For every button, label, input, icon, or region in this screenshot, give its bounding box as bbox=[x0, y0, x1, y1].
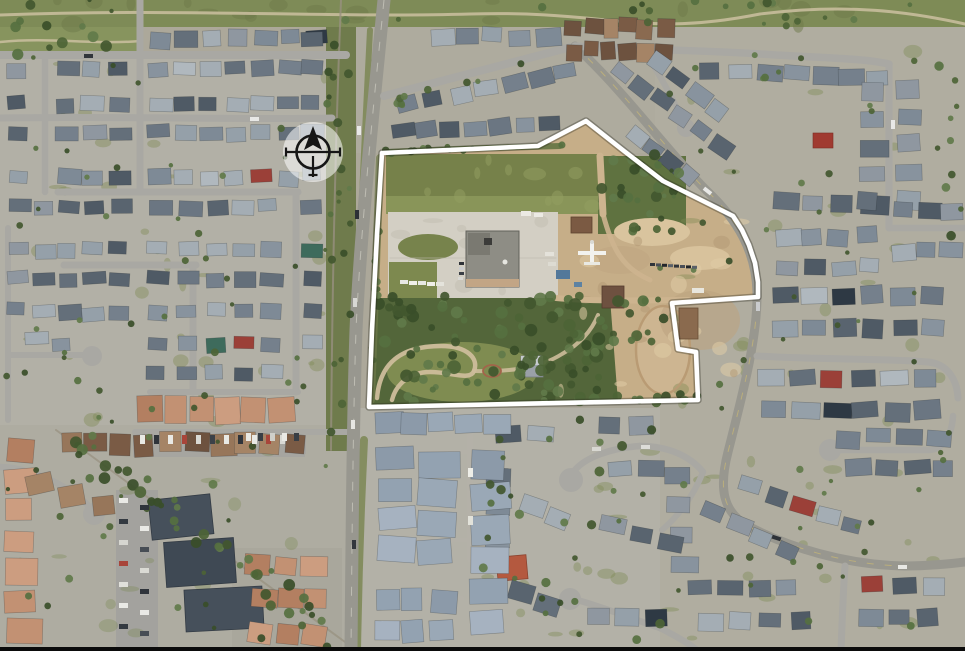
terrain-patch bbox=[147, 140, 160, 148]
terrain-patch bbox=[568, 167, 582, 179]
terrain-patch bbox=[457, 225, 467, 232]
house-roof bbox=[488, 117, 512, 137]
tree bbox=[252, 569, 263, 580]
house-roof bbox=[484, 414, 511, 434]
house-roof bbox=[233, 244, 255, 257]
house-roof bbox=[7, 270, 29, 284]
house-roof bbox=[665, 467, 690, 484]
tree bbox=[461, 317, 468, 324]
tree bbox=[946, 430, 952, 436]
house-roof bbox=[7, 64, 26, 79]
house-roof bbox=[820, 370, 842, 388]
tree bbox=[161, 313, 167, 319]
tree bbox=[324, 464, 328, 468]
tree bbox=[110, 63, 115, 68]
terrain-patch bbox=[834, 5, 855, 18]
house-roof bbox=[199, 127, 223, 141]
tree bbox=[294, 355, 299, 360]
terrain-patch bbox=[516, 608, 525, 617]
terrain-region bbox=[386, 196, 602, 214]
house-roof bbox=[174, 170, 193, 185]
house-roof bbox=[377, 535, 416, 563]
tree bbox=[463, 378, 471, 386]
tree bbox=[84, 174, 89, 179]
house-roof bbox=[378, 479, 411, 502]
house-roof bbox=[207, 200, 228, 216]
tree bbox=[496, 306, 508, 318]
house-roof bbox=[250, 96, 274, 111]
house-roof bbox=[509, 30, 531, 46]
house-roof bbox=[831, 195, 853, 213]
tree bbox=[266, 600, 276, 610]
house-roof bbox=[801, 287, 828, 304]
terrain-patch bbox=[747, 456, 755, 468]
tree bbox=[304, 602, 313, 611]
tree bbox=[958, 206, 964, 212]
tree bbox=[244, 555, 253, 564]
tree bbox=[805, 617, 812, 624]
tree bbox=[845, 250, 849, 254]
tree bbox=[70, 479, 75, 484]
house-roof bbox=[224, 61, 245, 74]
tree bbox=[216, 440, 220, 444]
tree bbox=[649, 149, 660, 160]
house-roof bbox=[857, 226, 878, 244]
tree bbox=[100, 460, 111, 471]
terrain-patch bbox=[671, 276, 687, 294]
tree bbox=[517, 60, 524, 67]
tree bbox=[952, 77, 958, 83]
image-frame-bar bbox=[0, 647, 965, 651]
tree bbox=[106, 523, 113, 530]
cul-de-sac-bulb bbox=[559, 588, 581, 610]
tree bbox=[581, 340, 591, 350]
house-roof bbox=[469, 578, 508, 604]
tree bbox=[341, 16, 349, 24]
house-roof bbox=[859, 167, 885, 182]
house-roof bbox=[857, 191, 878, 210]
aerial-canvas bbox=[0, 0, 965, 651]
tree bbox=[484, 535, 491, 542]
tree bbox=[911, 359, 916, 364]
house-roof bbox=[234, 336, 254, 349]
house-roof bbox=[177, 367, 197, 380]
house-roof bbox=[301, 59, 323, 75]
tree bbox=[109, 9, 113, 13]
tree bbox=[406, 304, 417, 315]
house-roof bbox=[585, 18, 605, 35]
tree bbox=[487, 500, 494, 507]
tree bbox=[300, 383, 306, 389]
tree bbox=[122, 466, 132, 476]
parked-car bbox=[674, 265, 679, 268]
tree bbox=[135, 486, 147, 498]
structure bbox=[813, 133, 833, 148]
tree bbox=[609, 336, 619, 346]
tree bbox=[608, 155, 618, 165]
house-roof bbox=[375, 411, 404, 433]
tree bbox=[571, 598, 578, 605]
vehicle bbox=[548, 262, 556, 266]
house-roof bbox=[6, 618, 43, 644]
parked-car bbox=[656, 263, 661, 266]
tree bbox=[514, 368, 525, 379]
tree bbox=[557, 600, 563, 606]
parked-car bbox=[196, 435, 201, 444]
house-roof bbox=[57, 484, 85, 509]
tree bbox=[587, 520, 596, 529]
house-roof bbox=[301, 95, 319, 109]
house-roof bbox=[148, 168, 172, 185]
terrain-patch bbox=[145, 558, 154, 563]
house-roof bbox=[832, 288, 855, 305]
tree bbox=[628, 337, 635, 344]
parked-car bbox=[140, 505, 149, 510]
house-roof bbox=[52, 338, 70, 351]
house-roof bbox=[109, 273, 130, 287]
vehicle bbox=[468, 468, 473, 477]
house-roof bbox=[7, 302, 25, 315]
tree bbox=[565, 344, 574, 353]
tree bbox=[128, 320, 135, 327]
house-roof bbox=[109, 306, 129, 321]
terrain-patch bbox=[534, 216, 548, 228]
tree bbox=[723, 3, 729, 9]
parked-car bbox=[140, 526, 149, 531]
tree bbox=[57, 513, 64, 520]
house-roof bbox=[859, 258, 879, 273]
terrain-patch bbox=[723, 169, 739, 175]
tree bbox=[609, 194, 618, 203]
house-roof bbox=[376, 589, 400, 610]
tree bbox=[680, 481, 687, 488]
tree bbox=[596, 183, 607, 194]
house-roof bbox=[205, 364, 223, 379]
parked-car bbox=[154, 435, 159, 444]
tree bbox=[110, 420, 114, 424]
tree bbox=[646, 210, 654, 218]
tree bbox=[568, 298, 581, 311]
house-roof bbox=[838, 69, 865, 86]
tree bbox=[566, 336, 573, 343]
tree bbox=[413, 345, 420, 352]
house-roof bbox=[923, 578, 944, 596]
tree bbox=[522, 363, 529, 370]
tree bbox=[576, 631, 582, 637]
tree bbox=[62, 355, 67, 360]
terrain-patch bbox=[681, 218, 700, 224]
tree bbox=[676, 588, 681, 593]
house-roof bbox=[274, 557, 297, 576]
tree bbox=[57, 37, 68, 48]
terrain-patch bbox=[423, 218, 443, 223]
parked-car bbox=[680, 265, 685, 268]
terrain-patch bbox=[583, 566, 592, 575]
tree bbox=[323, 248, 327, 252]
tree bbox=[762, 22, 766, 26]
tree bbox=[496, 435, 504, 443]
tree bbox=[726, 554, 734, 562]
parked-car bbox=[119, 603, 128, 608]
tree bbox=[96, 387, 102, 393]
house-roof bbox=[81, 307, 104, 323]
house-roof bbox=[892, 577, 916, 594]
house-roof bbox=[9, 242, 29, 254]
terrain-patch bbox=[474, 167, 480, 179]
house-roof bbox=[203, 30, 221, 47]
compass-north-icon[interactable] bbox=[283, 122, 343, 182]
tree bbox=[674, 168, 685, 179]
tree bbox=[796, 466, 803, 473]
tree bbox=[640, 491, 646, 497]
house-roof bbox=[4, 531, 34, 553]
terrain-patch bbox=[579, 307, 587, 320]
house-roof bbox=[58, 200, 80, 214]
tree bbox=[327, 428, 336, 437]
tree bbox=[567, 380, 575, 388]
terrain-patch bbox=[712, 342, 727, 355]
terrain-patch bbox=[523, 168, 546, 181]
tree bbox=[764, 227, 769, 232]
tree bbox=[395, 298, 403, 306]
house-roof bbox=[109, 171, 131, 186]
parked-car bbox=[282, 433, 287, 441]
vehicle bbox=[400, 280, 408, 284]
tree bbox=[666, 90, 673, 97]
terrain-patch bbox=[633, 236, 642, 246]
house-roof bbox=[866, 428, 890, 442]
terrain-patch bbox=[823, 465, 842, 474]
terrain-patch bbox=[424, 187, 431, 196]
tree bbox=[423, 360, 433, 370]
structure bbox=[484, 238, 492, 245]
parked-car bbox=[140, 435, 145, 444]
vehicle bbox=[459, 272, 464, 275]
house-roof bbox=[304, 303, 323, 318]
aerial-imagery-view[interactable] bbox=[0, 0, 965, 651]
tree bbox=[46, 44, 53, 51]
house-roof bbox=[430, 590, 458, 615]
house-roof bbox=[699, 63, 719, 80]
terrain-patch bbox=[391, 230, 410, 239]
house-roof bbox=[301, 244, 323, 258]
house-roof bbox=[303, 335, 323, 349]
house-roof bbox=[791, 402, 820, 420]
house-roof bbox=[150, 98, 174, 112]
tree bbox=[512, 576, 517, 581]
house-roof bbox=[8, 127, 27, 141]
house-roof bbox=[59, 274, 77, 288]
house-roof bbox=[150, 32, 171, 50]
house-roof bbox=[851, 401, 878, 419]
tree bbox=[294, 399, 300, 405]
tree bbox=[174, 604, 181, 611]
tree bbox=[861, 549, 868, 556]
tree bbox=[822, 491, 827, 496]
house-roof bbox=[417, 478, 458, 508]
house-roof bbox=[918, 202, 942, 219]
tree bbox=[525, 324, 538, 337]
house-roof bbox=[227, 98, 249, 113]
structure bbox=[679, 308, 698, 339]
tree bbox=[237, 562, 244, 569]
house-roof bbox=[896, 80, 920, 100]
tree bbox=[948, 171, 956, 179]
tree bbox=[536, 342, 546, 352]
tree bbox=[230, 302, 234, 306]
tree bbox=[448, 351, 457, 360]
terrain-patch bbox=[808, 89, 824, 96]
house-roof bbox=[861, 576, 883, 593]
tree bbox=[396, 17, 401, 22]
tree bbox=[135, 80, 140, 85]
tree bbox=[592, 332, 605, 345]
parked-car bbox=[119, 498, 128, 503]
tree bbox=[823, 15, 828, 20]
parked-car bbox=[238, 435, 243, 444]
house-roof bbox=[9, 170, 28, 183]
terrain-patch bbox=[51, 554, 66, 558]
tree bbox=[442, 368, 451, 377]
terrain-patch bbox=[173, 354, 189, 367]
house-roof bbox=[921, 319, 944, 337]
house-roof bbox=[165, 396, 187, 424]
tree bbox=[563, 319, 575, 331]
house-roof bbox=[199, 97, 217, 111]
terrain-region bbox=[398, 234, 458, 260]
house-roof bbox=[207, 302, 225, 316]
vehicle bbox=[458, 277, 463, 280]
terrain-patch bbox=[105, 599, 115, 609]
house-roof bbox=[618, 17, 637, 32]
house-roof bbox=[206, 273, 224, 288]
tree bbox=[515, 313, 524, 322]
vehicle bbox=[641, 445, 650, 449]
tree bbox=[658, 215, 664, 221]
house-roof bbox=[749, 580, 771, 597]
tree bbox=[792, 294, 797, 299]
house-roof bbox=[773, 191, 800, 210]
tree bbox=[553, 386, 564, 397]
terrain-patch bbox=[584, 200, 600, 213]
house-roof bbox=[832, 261, 857, 277]
tree bbox=[479, 563, 488, 572]
house-roof bbox=[179, 201, 203, 217]
house-roof bbox=[920, 286, 943, 305]
terrain-patch bbox=[135, 287, 149, 299]
tree bbox=[746, 553, 754, 561]
tree bbox=[524, 297, 536, 309]
tree bbox=[494, 325, 507, 338]
house-roof bbox=[482, 26, 502, 42]
tree bbox=[171, 497, 178, 504]
structure bbox=[503, 260, 508, 265]
tree bbox=[850, 16, 857, 23]
tree bbox=[224, 275, 230, 281]
structure bbox=[578, 251, 606, 255]
tree bbox=[655, 296, 661, 302]
tree bbox=[268, 568, 274, 574]
tree bbox=[318, 617, 326, 625]
terrain-patch bbox=[573, 562, 581, 571]
house-roof bbox=[401, 619, 424, 643]
house-roof bbox=[176, 305, 196, 317]
tree bbox=[328, 211, 334, 217]
tree bbox=[340, 250, 347, 257]
tree bbox=[794, 18, 801, 25]
vehicle bbox=[418, 281, 426, 285]
tree bbox=[612, 295, 624, 307]
structure bbox=[571, 217, 592, 233]
house-roof bbox=[174, 31, 198, 48]
tree bbox=[518, 322, 526, 330]
tree bbox=[488, 366, 498, 376]
tree bbox=[948, 115, 954, 121]
terrain-patch bbox=[485, 155, 491, 166]
tree bbox=[99, 472, 111, 484]
house-roof bbox=[470, 514, 510, 545]
tree bbox=[947, 137, 954, 144]
tree bbox=[783, 22, 790, 29]
tree bbox=[798, 526, 803, 531]
tree bbox=[594, 467, 604, 477]
tree bbox=[632, 635, 641, 644]
tree bbox=[419, 375, 428, 384]
tree bbox=[336, 190, 342, 196]
tree bbox=[934, 61, 943, 70]
house-roof bbox=[281, 29, 300, 44]
house-roof bbox=[82, 61, 100, 77]
tree bbox=[563, 356, 572, 365]
tree bbox=[397, 318, 407, 328]
tree bbox=[644, 18, 652, 26]
house-roof bbox=[146, 366, 164, 380]
tree bbox=[855, 524, 861, 530]
terrain-patch bbox=[678, 1, 688, 17]
tree bbox=[539, 595, 545, 601]
house-roof bbox=[276, 623, 300, 645]
house-roof bbox=[147, 270, 170, 285]
house-roof bbox=[429, 620, 454, 641]
tree bbox=[326, 94, 331, 99]
tree bbox=[174, 504, 181, 511]
tree bbox=[103, 213, 109, 219]
house-roof bbox=[416, 538, 452, 565]
house-roof bbox=[688, 580, 712, 595]
tree bbox=[790, 559, 796, 565]
house-roof bbox=[422, 90, 442, 108]
house-roof bbox=[250, 169, 272, 183]
tree bbox=[719, 406, 724, 411]
tree bbox=[546, 311, 558, 323]
house-roof bbox=[469, 609, 504, 635]
cul-de-sac-bulb bbox=[82, 346, 102, 366]
tree bbox=[626, 309, 635, 318]
tree bbox=[85, 474, 94, 483]
house-roof bbox=[729, 611, 751, 630]
house-roof bbox=[940, 203, 963, 220]
terrain-patch bbox=[482, 16, 500, 25]
house-roof bbox=[618, 43, 638, 61]
vehicle bbox=[534, 213, 543, 217]
terrain-patch bbox=[141, 228, 150, 234]
tree bbox=[616, 518, 621, 523]
house-roof bbox=[862, 319, 884, 339]
tree bbox=[323, 100, 331, 108]
terrain-patch bbox=[713, 236, 730, 249]
house-roof bbox=[148, 337, 167, 350]
house-roof bbox=[200, 61, 221, 76]
